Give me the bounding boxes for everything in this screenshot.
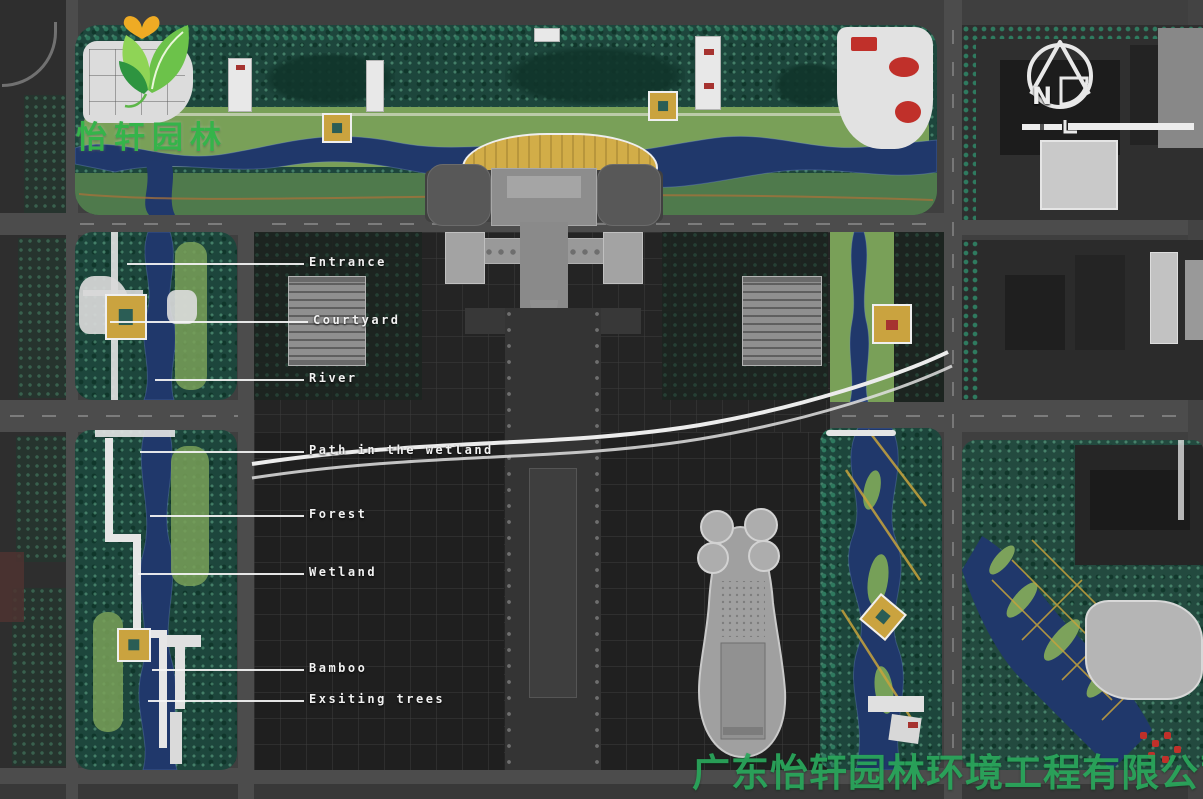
pier-white (167, 635, 201, 647)
colonnade-row (505, 308, 513, 770)
tree-area (16, 436, 66, 562)
courtyard-building-east (742, 276, 822, 366)
boardwalk (95, 430, 175, 437)
pavilion (872, 304, 912, 344)
pavilion (322, 113, 352, 143)
boardwalk (105, 534, 141, 542)
flower-cluster (1164, 732, 1171, 739)
tree-area (18, 238, 66, 398)
pavilion-core (875, 609, 891, 625)
dock-white (167, 290, 197, 324)
colonnade-row (593, 308, 601, 770)
pavilion-core (332, 123, 342, 133)
axis-hall (529, 468, 577, 698)
boardwalk (159, 638, 167, 748)
building-rotunda (597, 164, 661, 226)
red-mark (886, 320, 898, 330)
pavilion (105, 294, 147, 340)
courtyard-building-west (288, 276, 366, 366)
boardwalk (826, 430, 896, 436)
building-stem (520, 222, 568, 308)
road-vertical (238, 213, 254, 799)
flower-bed (851, 37, 877, 51)
logo-leaves-icon (90, 2, 220, 117)
red-roof-block (0, 552, 24, 622)
flower-bed (889, 57, 919, 77)
flower-bed (895, 101, 921, 123)
pier-white (175, 647, 185, 709)
tree-clump (775, 63, 845, 107)
west-park-upper (75, 232, 237, 400)
north-letter: N (1032, 82, 1052, 110)
teardrop-building (665, 495, 815, 767)
building-light (1150, 252, 1178, 344)
building-core-top (507, 176, 581, 198)
building-dark (1075, 255, 1125, 350)
tree-area (24, 95, 66, 213)
dock-white (888, 714, 921, 744)
axis-boulevard (505, 308, 601, 770)
boardwalk (1178, 440, 1184, 520)
city-block (254, 432, 504, 770)
building-white (228, 58, 252, 112)
building-light (1085, 600, 1203, 700)
pavilion-core (658, 101, 668, 111)
red-mark (908, 722, 918, 728)
west-park-lower (75, 430, 237, 770)
building-light (1040, 140, 1118, 210)
pavilion (648, 91, 678, 121)
building-white (366, 60, 384, 112)
plaza-white (837, 27, 933, 149)
building-rotunda (427, 164, 491, 226)
boardwalk (133, 542, 141, 630)
dock-white (868, 696, 924, 712)
flower-cluster (1140, 732, 1147, 739)
east-park-corridor (820, 428, 942, 770)
scale-bar (1022, 124, 1062, 130)
city-block (962, 240, 1203, 400)
building-white (534, 28, 560, 42)
end-pavilion (445, 232, 485, 284)
building-light (1185, 260, 1203, 340)
red-mark (236, 65, 245, 70)
logo-text: 怡轩园林 (76, 112, 228, 157)
red-mark (704, 49, 714, 55)
building-white (695, 36, 721, 110)
river-bank (171, 446, 209, 586)
red-mark (704, 83, 714, 89)
pavilion-core (128, 639, 139, 650)
southeast-block (962, 440, 1203, 770)
company-watermark: 广东怡轩园林环境工程有限公司 (692, 742, 1203, 797)
pier-white (170, 712, 182, 764)
pavilion (117, 628, 151, 662)
main-building (425, 158, 663, 308)
end-pavilion (603, 232, 643, 284)
pavilion-core (119, 309, 133, 325)
tree-row (962, 25, 976, 220)
building-dark (1005, 275, 1065, 350)
tree-row (962, 240, 978, 400)
boardwalk (105, 438, 113, 534)
site-plan-canvas: N Ent (0, 0, 1203, 799)
building-light (1158, 28, 1203, 148)
scale-bar (1068, 123, 1194, 130)
road-centerline (952, 30, 954, 760)
